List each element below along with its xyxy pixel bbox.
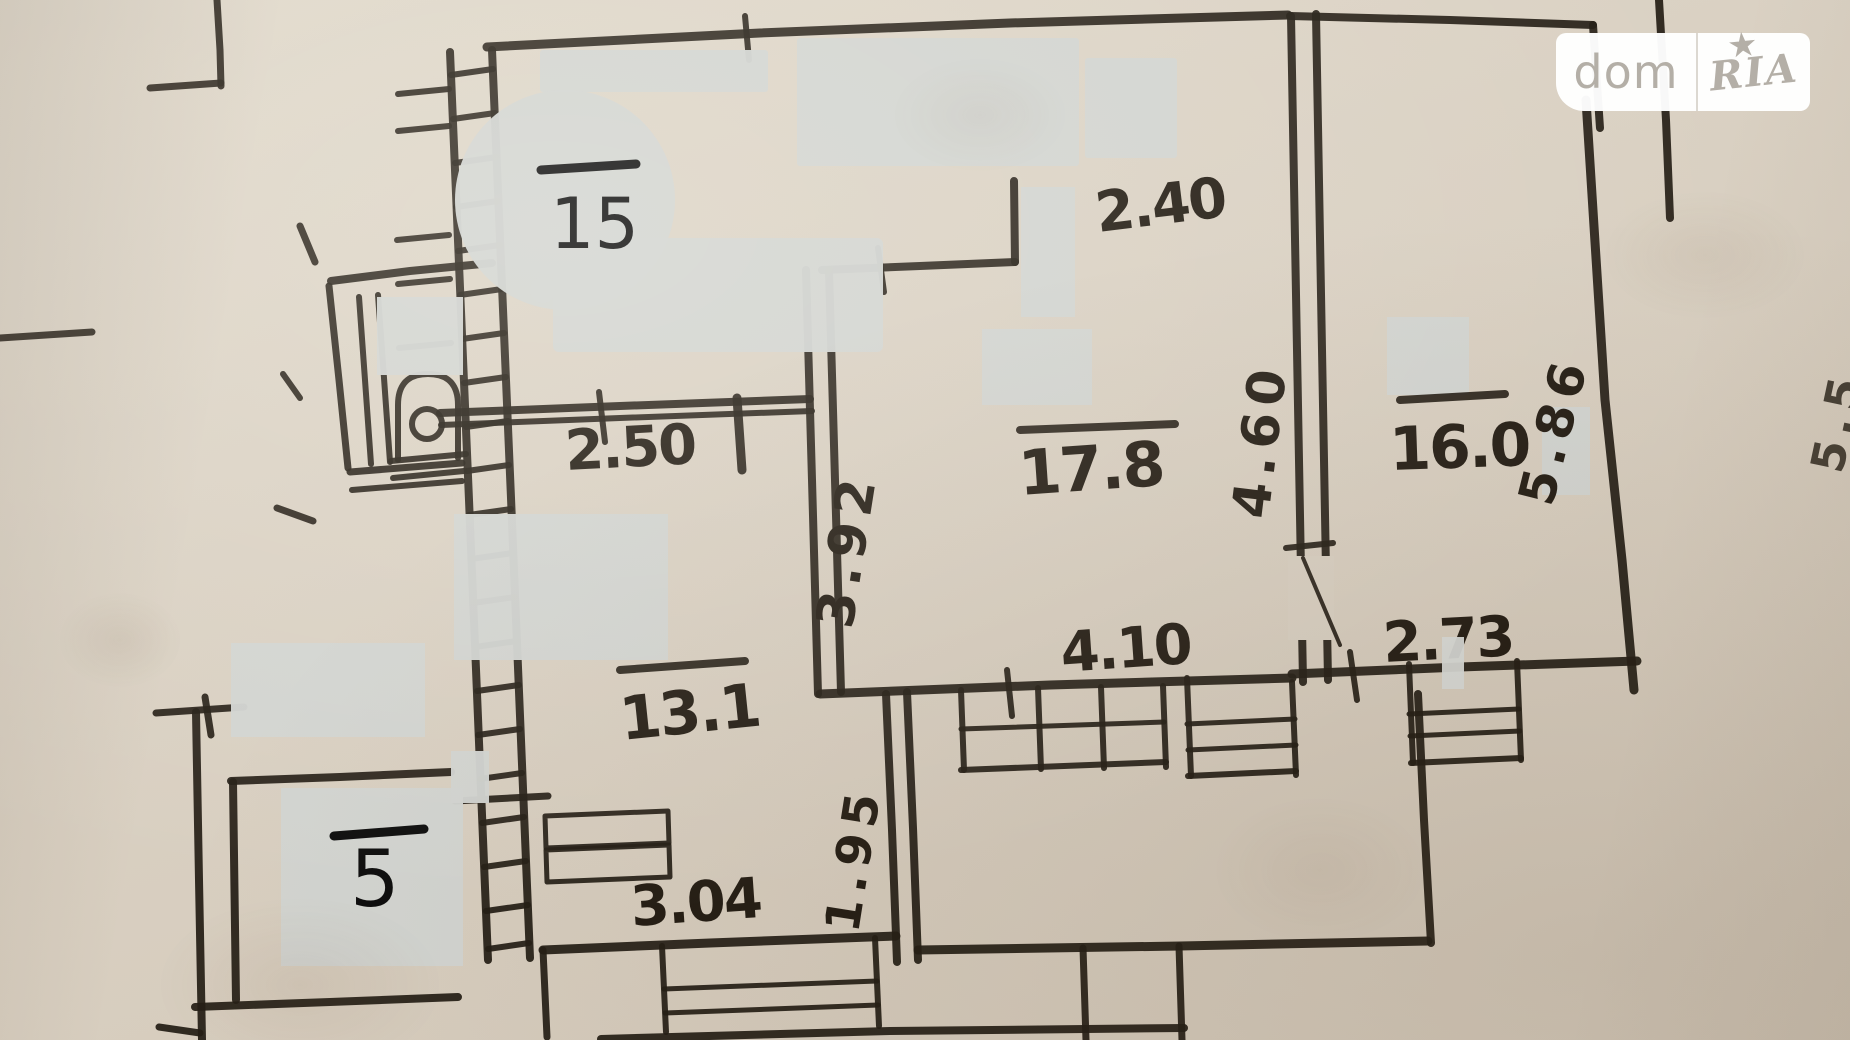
dimension-4-60: 4.60 xyxy=(1221,359,1300,521)
ria-star-icon: ★ xyxy=(1727,26,1759,64)
dimension-2-40: 2.40 xyxy=(1092,166,1229,246)
area-label-13-1: 13.1 xyxy=(616,671,763,755)
room-number-15: 15 xyxy=(550,183,639,265)
dimension-5-5-partial: 5.5 xyxy=(1800,366,1850,477)
area-label-16-0: 16.0 xyxy=(1388,410,1530,485)
dimension-3-92: 3.92 xyxy=(806,468,890,632)
room-number-5: 5 xyxy=(350,835,400,925)
dimension-1-95: 1.95 xyxy=(815,782,893,935)
floor-plan-drawing: 2.50 2.40 17.8 4.60 16.0 5.86 3.92 4.10 … xyxy=(0,0,1850,1040)
ria-logo-text: ★ RIA xyxy=(1696,43,1812,101)
dom-ria-watermark: dom ★ RIA xyxy=(1556,33,1810,111)
dimension-4-10: 4.10 xyxy=(1058,612,1192,686)
dimension-2-50: 2.50 xyxy=(563,412,696,484)
dimension-3-04: 3.04 xyxy=(628,866,762,940)
floor-plan-photo: 2.50 2.40 17.8 4.60 16.0 5.86 3.92 4.10 … xyxy=(0,0,1850,1040)
door-opening xyxy=(1288,556,1340,645)
dom-logo-text: dom xyxy=(1556,33,1696,111)
area-label-17-8: 17.8 xyxy=(1016,427,1166,510)
